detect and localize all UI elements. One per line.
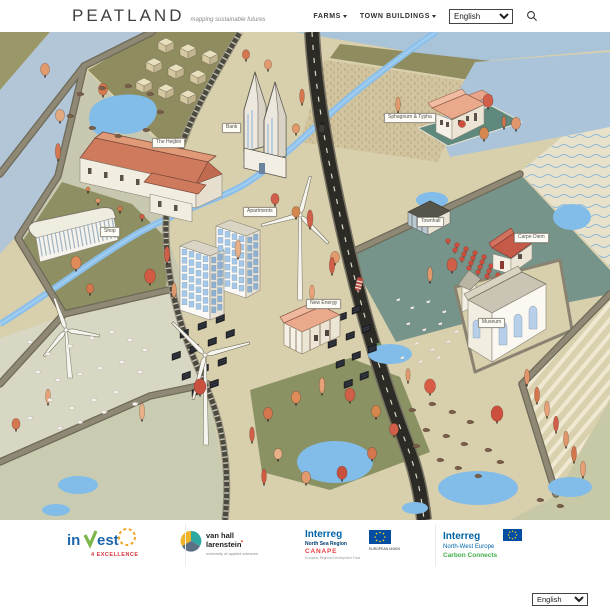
partner-logos-bar: in est 4 EXCELLENCE van hall larenstein …: [0, 520, 610, 570]
window: [203, 256, 208, 262]
window: [218, 237, 223, 243]
site-tagline: mapping sustainable futures: [191, 17, 266, 23]
vhl-line1: van hall: [206, 531, 234, 540]
window: [212, 290, 217, 296]
window: [212, 299, 217, 305]
window: [218, 229, 223, 235]
window: [189, 301, 194, 307]
window: [218, 288, 223, 294]
window: [248, 237, 253, 243]
window: [196, 295, 201, 301]
window: [225, 248, 230, 254]
window: [196, 279, 201, 285]
window: [203, 306, 208, 312]
window: [248, 262, 253, 268]
nav-farms-label: FARMS: [313, 13, 341, 20]
window: [225, 264, 230, 270]
vhl-circle-icon: [181, 530, 202, 551]
main-nav: FARMS TOWN BUILDINGS English: [313, 9, 538, 24]
language-select-top[interactable]: English: [449, 9, 513, 24]
window: [196, 270, 201, 276]
language-select-bottom-wrap: English: [532, 589, 588, 607]
interreg-nsr-canape: CANAPE: [305, 548, 337, 555]
window: [218, 245, 223, 251]
window: [239, 285, 244, 291]
interreg-nsr-region: North Sea Region: [305, 541, 347, 547]
window: [189, 285, 194, 291]
map-label-carpe-diem[interactable]: Carpe Diem: [514, 233, 549, 243]
window: [212, 257, 217, 263]
window: [189, 260, 194, 266]
map-label-sphagnum-typha[interactable]: Sphagnum & Typha: [384, 113, 436, 123]
window: [254, 234, 259, 240]
window: [218, 263, 223, 269]
map-label-shop[interactable]: Shop: [100, 227, 120, 237]
logo-invest-sub: 4 EXCELLENCE: [91, 552, 139, 558]
window: [254, 267, 259, 273]
window: [212, 307, 217, 313]
map-label-townhall[interactable]: Townhall: [417, 217, 444, 227]
window: [218, 271, 223, 277]
window: [218, 296, 223, 302]
window: [189, 268, 194, 274]
logo-invest4excellence[interactable]: in est 4 EXCELLENCE: [65, 526, 141, 565]
chevron-down-icon: [343, 15, 347, 18]
window: [218, 304, 223, 310]
window: [254, 251, 259, 257]
window: [189, 251, 194, 257]
logo-interreg-nwe-carbon-connects[interactable]: Interreg North-West Europe Carbon Connec…: [441, 526, 545, 565]
site-title[interactable]: PEATLAND: [72, 6, 185, 26]
logo-invest-part1: in: [67, 532, 80, 549]
window: [225, 272, 230, 278]
window: [239, 277, 244, 283]
window: [182, 282, 187, 288]
eu-flag-icon: [369, 530, 391, 544]
window: [182, 299, 187, 305]
site-logo[interactable]: PEATLAND mapping sustainable futures: [72, 6, 266, 26]
window: [225, 231, 230, 237]
map-canvas: [0, 32, 610, 520]
window: [182, 249, 187, 255]
footer-separator: [185, 524, 186, 566]
vhl-line3: university of applied sciences: [206, 551, 258, 556]
map-label-farm-heijbin[interactable]: The Heijbin: [152, 138, 185, 148]
window: [248, 270, 253, 276]
logo-van-hall-larenstein[interactable]: van hall larenstein university of applie…: [179, 526, 265, 565]
leaf-check-icon: [85, 531, 96, 545]
window: [232, 234, 237, 240]
window: [196, 254, 201, 260]
search-icon[interactable]: [526, 10, 538, 22]
window: [203, 289, 208, 295]
window: [182, 266, 187, 272]
window: [232, 258, 237, 264]
window: [212, 274, 217, 280]
map-label-museum[interactable]: Museum: [478, 318, 505, 328]
vhl-line2: larenstein: [206, 540, 242, 549]
window: [232, 283, 237, 289]
site-header: PEATLAND mapping sustainable futures FAR…: [0, 0, 610, 32]
window: [218, 254, 223, 260]
window: [196, 303, 201, 309]
interreg-nsr-title: Interreg: [305, 529, 342, 540]
interreg-nwe-carbon: Carbon Connects: [443, 552, 498, 559]
interreg-nwe-region: North-West Europe: [443, 544, 495, 550]
window: [218, 279, 223, 285]
window: [254, 259, 259, 265]
footer-separator: [435, 524, 436, 566]
language-select-bottom[interactable]: English: [532, 593, 588, 606]
nav-farms[interactable]: FARMS: [313, 13, 347, 20]
window: [239, 261, 244, 267]
orange-swirl-icon: [119, 529, 135, 545]
window: [212, 265, 217, 271]
window: [254, 283, 259, 289]
window: [196, 287, 201, 293]
window: [189, 293, 194, 299]
window: [203, 297, 208, 303]
window: [182, 291, 187, 297]
eu-flag-icon: [503, 529, 522, 541]
logo-invest-part2: est: [97, 532, 119, 549]
window: [248, 253, 253, 259]
window: [248, 278, 253, 284]
logo-interreg-north-sea-region[interactable]: Interreg North Sea Region CANAPE Europea…: [303, 524, 403, 567]
map-label-apartments[interactable]: Apartments: [243, 207, 277, 217]
window: [248, 245, 253, 251]
window: [203, 273, 208, 279]
map-label-bank[interactable]: Bank: [222, 123, 241, 133]
nav-town-buildings[interactable]: TOWN BUILDINGS: [360, 13, 436, 20]
map-illustration[interactable]: The Heijbin Bank Apartments Shop New Ene…: [0, 32, 610, 520]
window: [254, 242, 259, 248]
orange-dot-icon: [241, 540, 243, 542]
chevron-down-icon: [432, 15, 436, 18]
window: [203, 281, 208, 287]
interreg-nsr-eu: EUROPEAN UNION: [369, 547, 400, 551]
interreg-nsr-fund: European Regional Development Fund: [305, 556, 360, 560]
window: [254, 275, 259, 281]
window: [189, 276, 194, 282]
interreg-nwe-title: Interreg: [443, 531, 480, 542]
nav-town-buildings-label: TOWN BUILDINGS: [360, 13, 430, 20]
window: [225, 256, 230, 262]
window: [232, 275, 237, 281]
window: [232, 266, 237, 272]
window: [225, 281, 230, 287]
window: [225, 240, 230, 246]
window: [203, 264, 208, 270]
window: [182, 257, 187, 263]
window: [196, 262, 201, 268]
window: [248, 286, 253, 292]
window: [212, 282, 217, 288]
window: [239, 269, 244, 275]
window: [182, 274, 187, 280]
map-label-new-energy[interactable]: New Energy: [306, 299, 341, 309]
